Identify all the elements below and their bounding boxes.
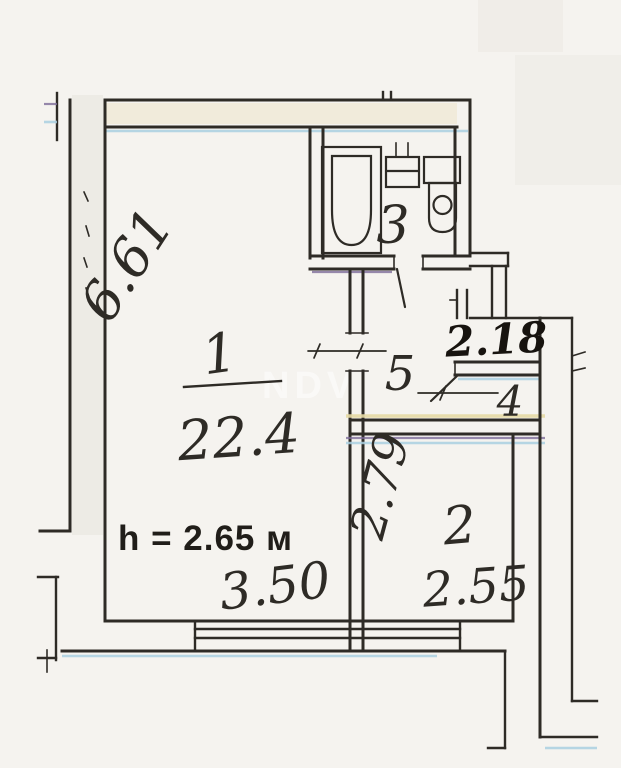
dim-room2-width-label: 2.55 <box>420 555 532 618</box>
dim-room1-width-label: 3.50 <box>216 551 334 622</box>
wall-tick <box>572 368 585 371</box>
dim-room2-depth-label: 2.79 <box>339 427 421 546</box>
ceiling-height-label: h = 2.65 м <box>118 519 293 558</box>
floor-plan-drawing: NDV <box>0 0 621 768</box>
room4-number-label: 4 <box>496 377 524 426</box>
bathroom-bottom-wall <box>310 256 470 272</box>
room3-number-label: 3 <box>376 196 409 256</box>
room1-number-label: 1 <box>198 320 241 387</box>
left-top-stub <box>44 93 57 140</box>
watermark-text: NDV <box>262 365 357 407</box>
room5-number-label: 5 <box>385 346 416 402</box>
right-walls <box>513 318 597 748</box>
floor-plan-page: NDV <box>0 0 621 768</box>
bathroom-door-leaf <box>397 269 405 307</box>
bathtub-outline <box>322 147 381 253</box>
bathroom-right-wall <box>450 100 508 318</box>
labels: 1 22.4 6.61 h = 2.65 м 3.50 2.79 2 2.55 … <box>67 196 548 622</box>
room1-area-label: 22.4 <box>174 401 302 473</box>
top-wall <box>105 92 470 131</box>
hall-dim-line <box>308 344 386 358</box>
dim-entry-width-label: 2.18 <box>443 312 549 366</box>
bathtub-basin <box>332 156 371 245</box>
room2-number-label: 2 <box>439 495 478 558</box>
closet-dim-line <box>418 386 498 400</box>
bottom-wall <box>62 621 513 748</box>
wall-fill <box>105 103 457 124</box>
scan-smudge <box>515 55 621 185</box>
window <box>195 621 460 651</box>
sink-icon <box>386 143 419 187</box>
scan-smudge <box>478 0 563 52</box>
balcony-mark <box>38 577 58 672</box>
toilet-seat <box>434 196 452 214</box>
wall-tick <box>572 352 585 356</box>
bathtub-icon <box>322 147 381 253</box>
